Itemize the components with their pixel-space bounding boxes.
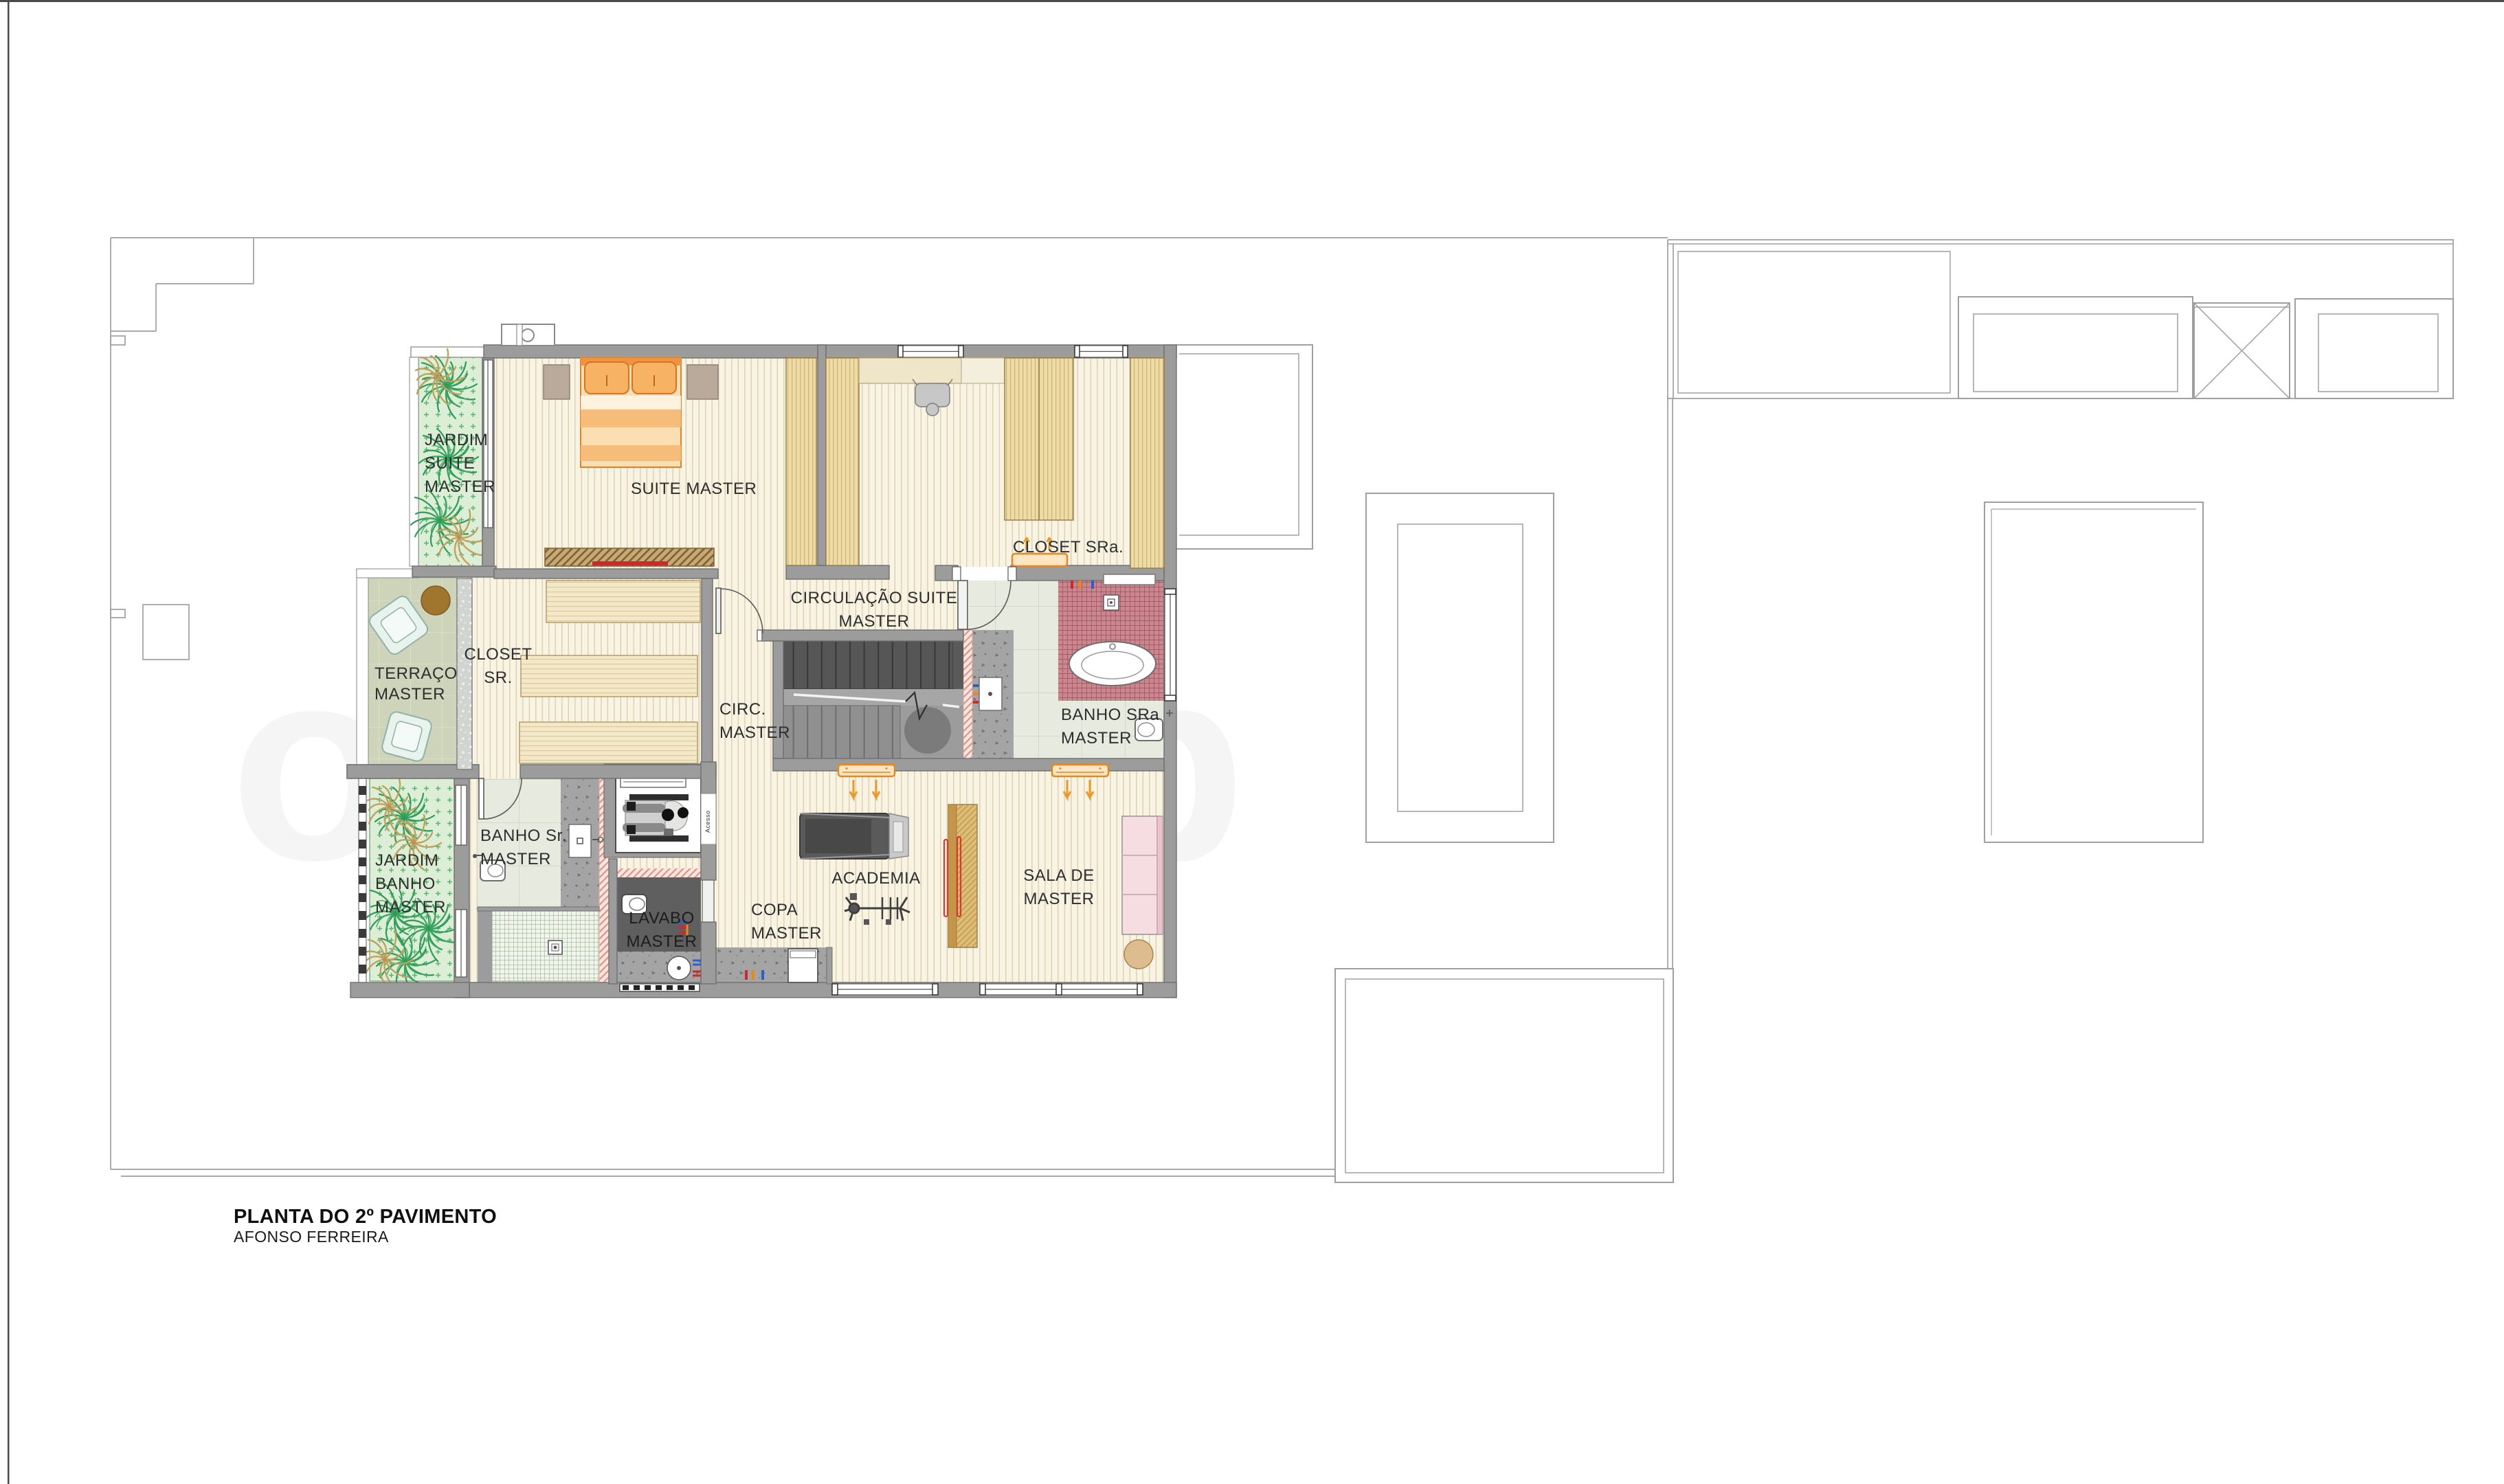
svg-text:COPA: COPA: [751, 901, 798, 919]
svg-text:Acesso: Acesso: [704, 810, 711, 833]
svg-text:MASTER: MASTER: [1061, 729, 1132, 747]
svg-text:AFONSO FERREIRA: AFONSO FERREIRA: [234, 1228, 389, 1246]
svg-text:BANHO SRa: BANHO SRa: [1061, 706, 1159, 724]
svg-text:CLOSET: CLOSET: [464, 645, 532, 664]
svg-text:BANHO Sr.: BANHO Sr.: [480, 827, 567, 845]
svg-text:MASTER: MASTER: [425, 477, 495, 496]
svg-text:JARDIM: JARDIM: [375, 851, 438, 870]
svg-text:ACADEMIA: ACADEMIA: [831, 869, 920, 888]
svg-text:MASTER: MASTER: [375, 685, 445, 704]
svg-text:CIRCULAÇÃO SUITE: CIRCULAÇÃO SUITE: [791, 589, 958, 607]
svg-text:MASTER: MASTER: [480, 850, 551, 868]
svg-text:BANHO: BANHO: [375, 875, 436, 893]
svg-text:MASTER: MASTER: [719, 723, 790, 742]
svg-text:MASTER: MASTER: [751, 924, 822, 943]
svg-text:SUITE MASTER: SUITE MASTER: [631, 480, 757, 498]
svg-text:SALA DE: SALA DE: [1023, 866, 1095, 885]
svg-text:SUITE: SUITE: [425, 454, 475, 473]
svg-text:MASTER: MASTER: [838, 612, 909, 631]
svg-text:CIRC.: CIRC.: [719, 700, 766, 719]
svg-text:MASTER: MASTER: [375, 898, 446, 917]
svg-text:JARDIM: JARDIM: [425, 431, 488, 449]
svg-text:LAVABO: LAVABO: [629, 909, 694, 927]
svg-text:TERRAÇO: TERRAÇO: [375, 664, 458, 683]
svg-text:MASTER: MASTER: [1023, 890, 1094, 908]
svg-text:SR.: SR.: [484, 668, 513, 687]
svg-text:PLANTA DO 2º PAVIMENTO: PLANTA DO 2º PAVIMENTO: [234, 1206, 497, 1228]
svg-text:CLOSET SRa.: CLOSET SRa.: [1013, 538, 1124, 556]
svg-text:MASTER: MASTER: [626, 932, 697, 951]
